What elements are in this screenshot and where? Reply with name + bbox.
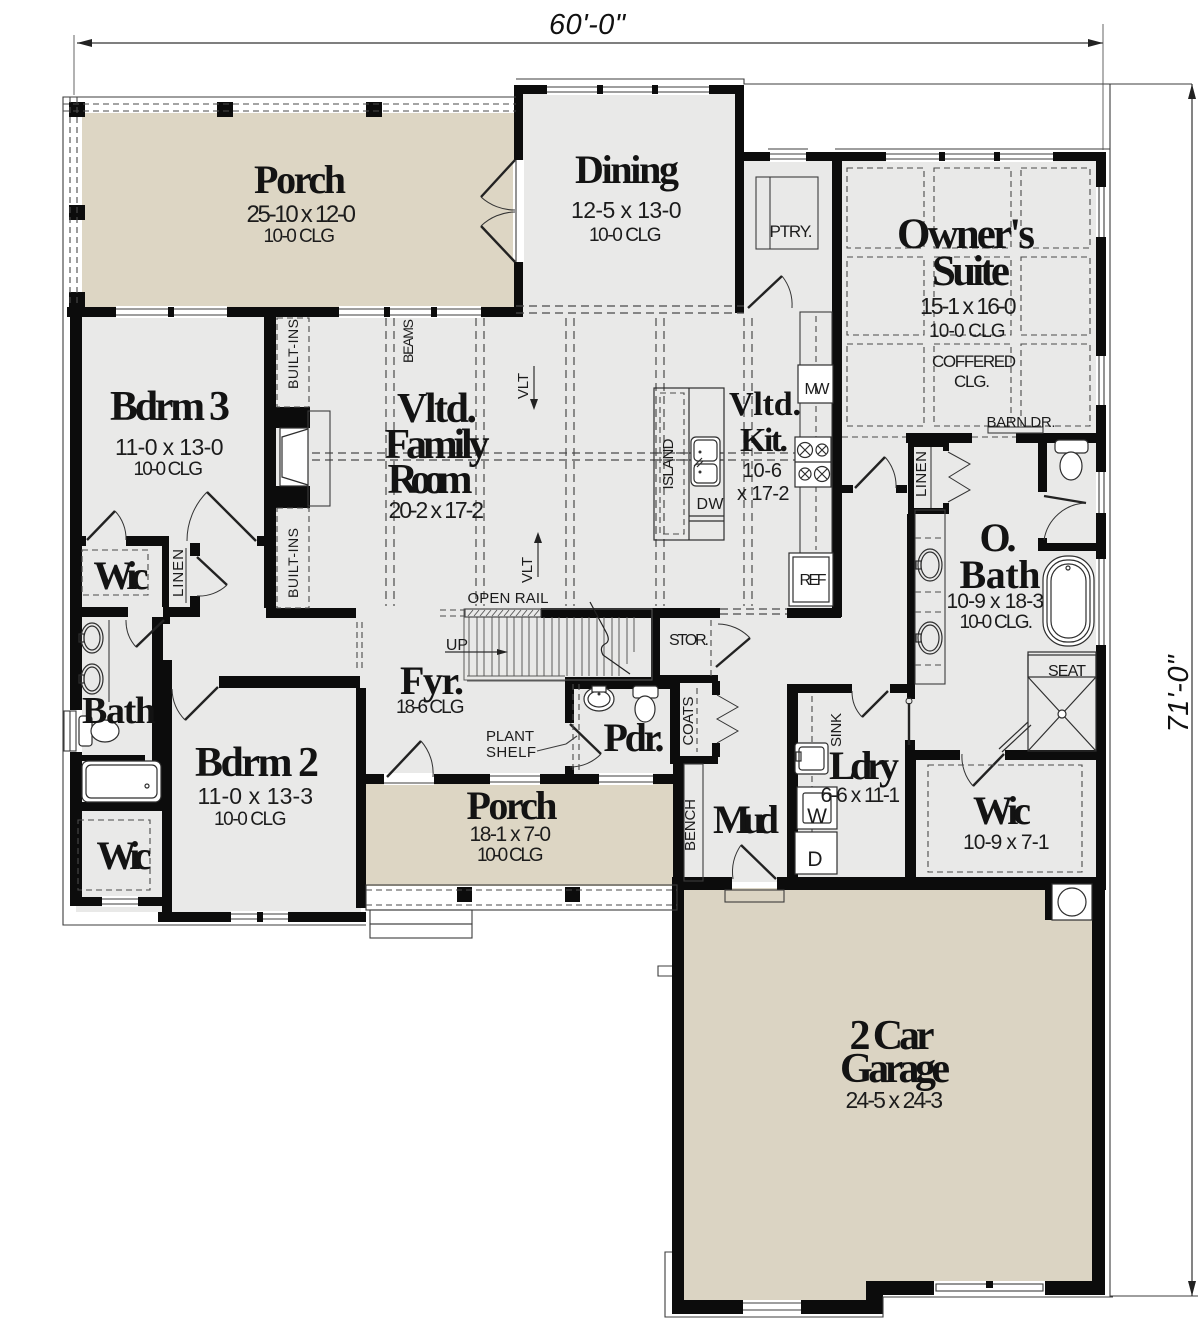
svg-text:COFFERED: COFFERED: [932, 352, 1016, 371]
svg-text:10-0 CLG: 10-0 CLG: [214, 809, 286, 830]
svg-text:VLT: VLT: [515, 373, 532, 399]
svg-text:18-6 CLG: 18-6 CLG: [396, 697, 464, 718]
svg-text:10-9 x 18-3: 10-9 x 18-3: [947, 590, 1044, 613]
svg-text:Wic: Wic: [94, 553, 149, 598]
svg-text:Pdr.: Pdr.: [604, 715, 665, 760]
svg-text:BUILT-INS: BUILT-INS: [285, 319, 301, 389]
svg-text:11-0 x 13-3: 11-0 x 13-3: [198, 783, 313, 809]
svg-text:OPEN RAIL: OPEN RAIL: [468, 590, 549, 607]
svg-text:11-0 x 13-0: 11-0 x 13-0: [115, 434, 223, 460]
svg-text:12-5 x 13-0: 12-5 x 13-0: [571, 197, 681, 223]
svg-text:BEAMS: BEAMS: [400, 319, 416, 363]
svg-text:VLT: VLT: [519, 557, 536, 583]
svg-text:10-0 CLG: 10-0 CLG: [134, 459, 203, 480]
svg-text:Wic: Wic: [973, 788, 1031, 833]
svg-text:71'-0": 71'-0": [1163, 654, 1195, 733]
svg-text:DW: DW: [697, 496, 725, 513]
svg-text:CLG.: CLG.: [954, 372, 990, 391]
svg-text:Porch: Porch: [254, 157, 346, 202]
svg-text:W: W: [807, 805, 827, 828]
svg-text:BENCH: BENCH: [682, 799, 699, 851]
svg-text:60'-0": 60'-0": [549, 9, 627, 41]
svg-text:STOR.: STOR.: [669, 632, 709, 649]
svg-text:SEAT: SEAT: [1048, 663, 1086, 680]
svg-text:10-0 CLG: 10-0 CLG: [264, 226, 335, 247]
svg-text:10-6: 10-6: [743, 460, 782, 482]
svg-text:Wic: Wic: [97, 833, 152, 878]
svg-text:SINK: SINK: [828, 713, 845, 747]
svg-text:10-0 CLG: 10-0 CLG: [477, 845, 543, 866]
svg-text:10-9 x 7-1: 10-9 x 7-1: [963, 831, 1049, 854]
svg-text:Dining: Dining: [575, 147, 679, 192]
svg-text:Porch: Porch: [467, 783, 558, 828]
svg-text:25-10 x 12-0: 25-10 x 12-0: [247, 201, 356, 228]
svg-text:15-1 x 16-0: 15-1 x 16-0: [920, 293, 1016, 319]
svg-text:D: D: [807, 848, 822, 871]
svg-text:PTRY.: PTRY.: [770, 222, 813, 241]
svg-text:18-1 x 7-0: 18-1 x 7-0: [470, 823, 551, 846]
svg-text:x 17-2: x 17-2: [737, 483, 789, 505]
svg-text:LINEN: LINEN: [913, 451, 930, 497]
svg-text:PLANT: PLANT: [486, 728, 534, 745]
svg-text:24-5 x 24-3: 24-5 x 24-3: [846, 1087, 943, 1113]
svg-text:Kit.: Kit.: [740, 422, 788, 459]
svg-text:10-0 CLG.: 10-0 CLG.: [960, 612, 1033, 633]
svg-text:Bdrm 2: Bdrm 2: [195, 740, 319, 786]
svg-text:MW: MW: [805, 381, 831, 398]
svg-text:10-0 CLG: 10-0 CLG: [589, 225, 661, 246]
svg-text:COATS: COATS: [680, 697, 697, 746]
svg-text:BUILT-INS: BUILT-INS: [285, 528, 301, 598]
svg-text:BARN DR.: BARN DR.: [987, 414, 1056, 431]
svg-text:6-6 x 11-1: 6-6 x 11-1: [821, 784, 900, 807]
svg-text:Mud: Mud: [713, 797, 779, 842]
svg-text:Vltd.: Vltd.: [729, 386, 801, 423]
svg-text:ISLAND: ISLAND: [660, 438, 677, 489]
svg-text:10-0 CLG: 10-0 CLG: [929, 321, 1005, 342]
svg-text:Suite: Suite: [932, 248, 1010, 295]
svg-text:SHELF: SHELF: [486, 744, 536, 761]
svg-text:Ldry: Ldry: [829, 743, 899, 788]
svg-text:20-2 x 17-2: 20-2 x 17-2: [389, 497, 484, 523]
svg-text:LINEN: LINEN: [170, 549, 187, 597]
svg-text:Bath: Bath: [82, 690, 156, 732]
svg-text:REF: REF: [800, 572, 827, 589]
svg-text:Bdrm 3: Bdrm 3: [110, 384, 230, 430]
svg-text:Garage: Garage: [840, 1046, 950, 1092]
